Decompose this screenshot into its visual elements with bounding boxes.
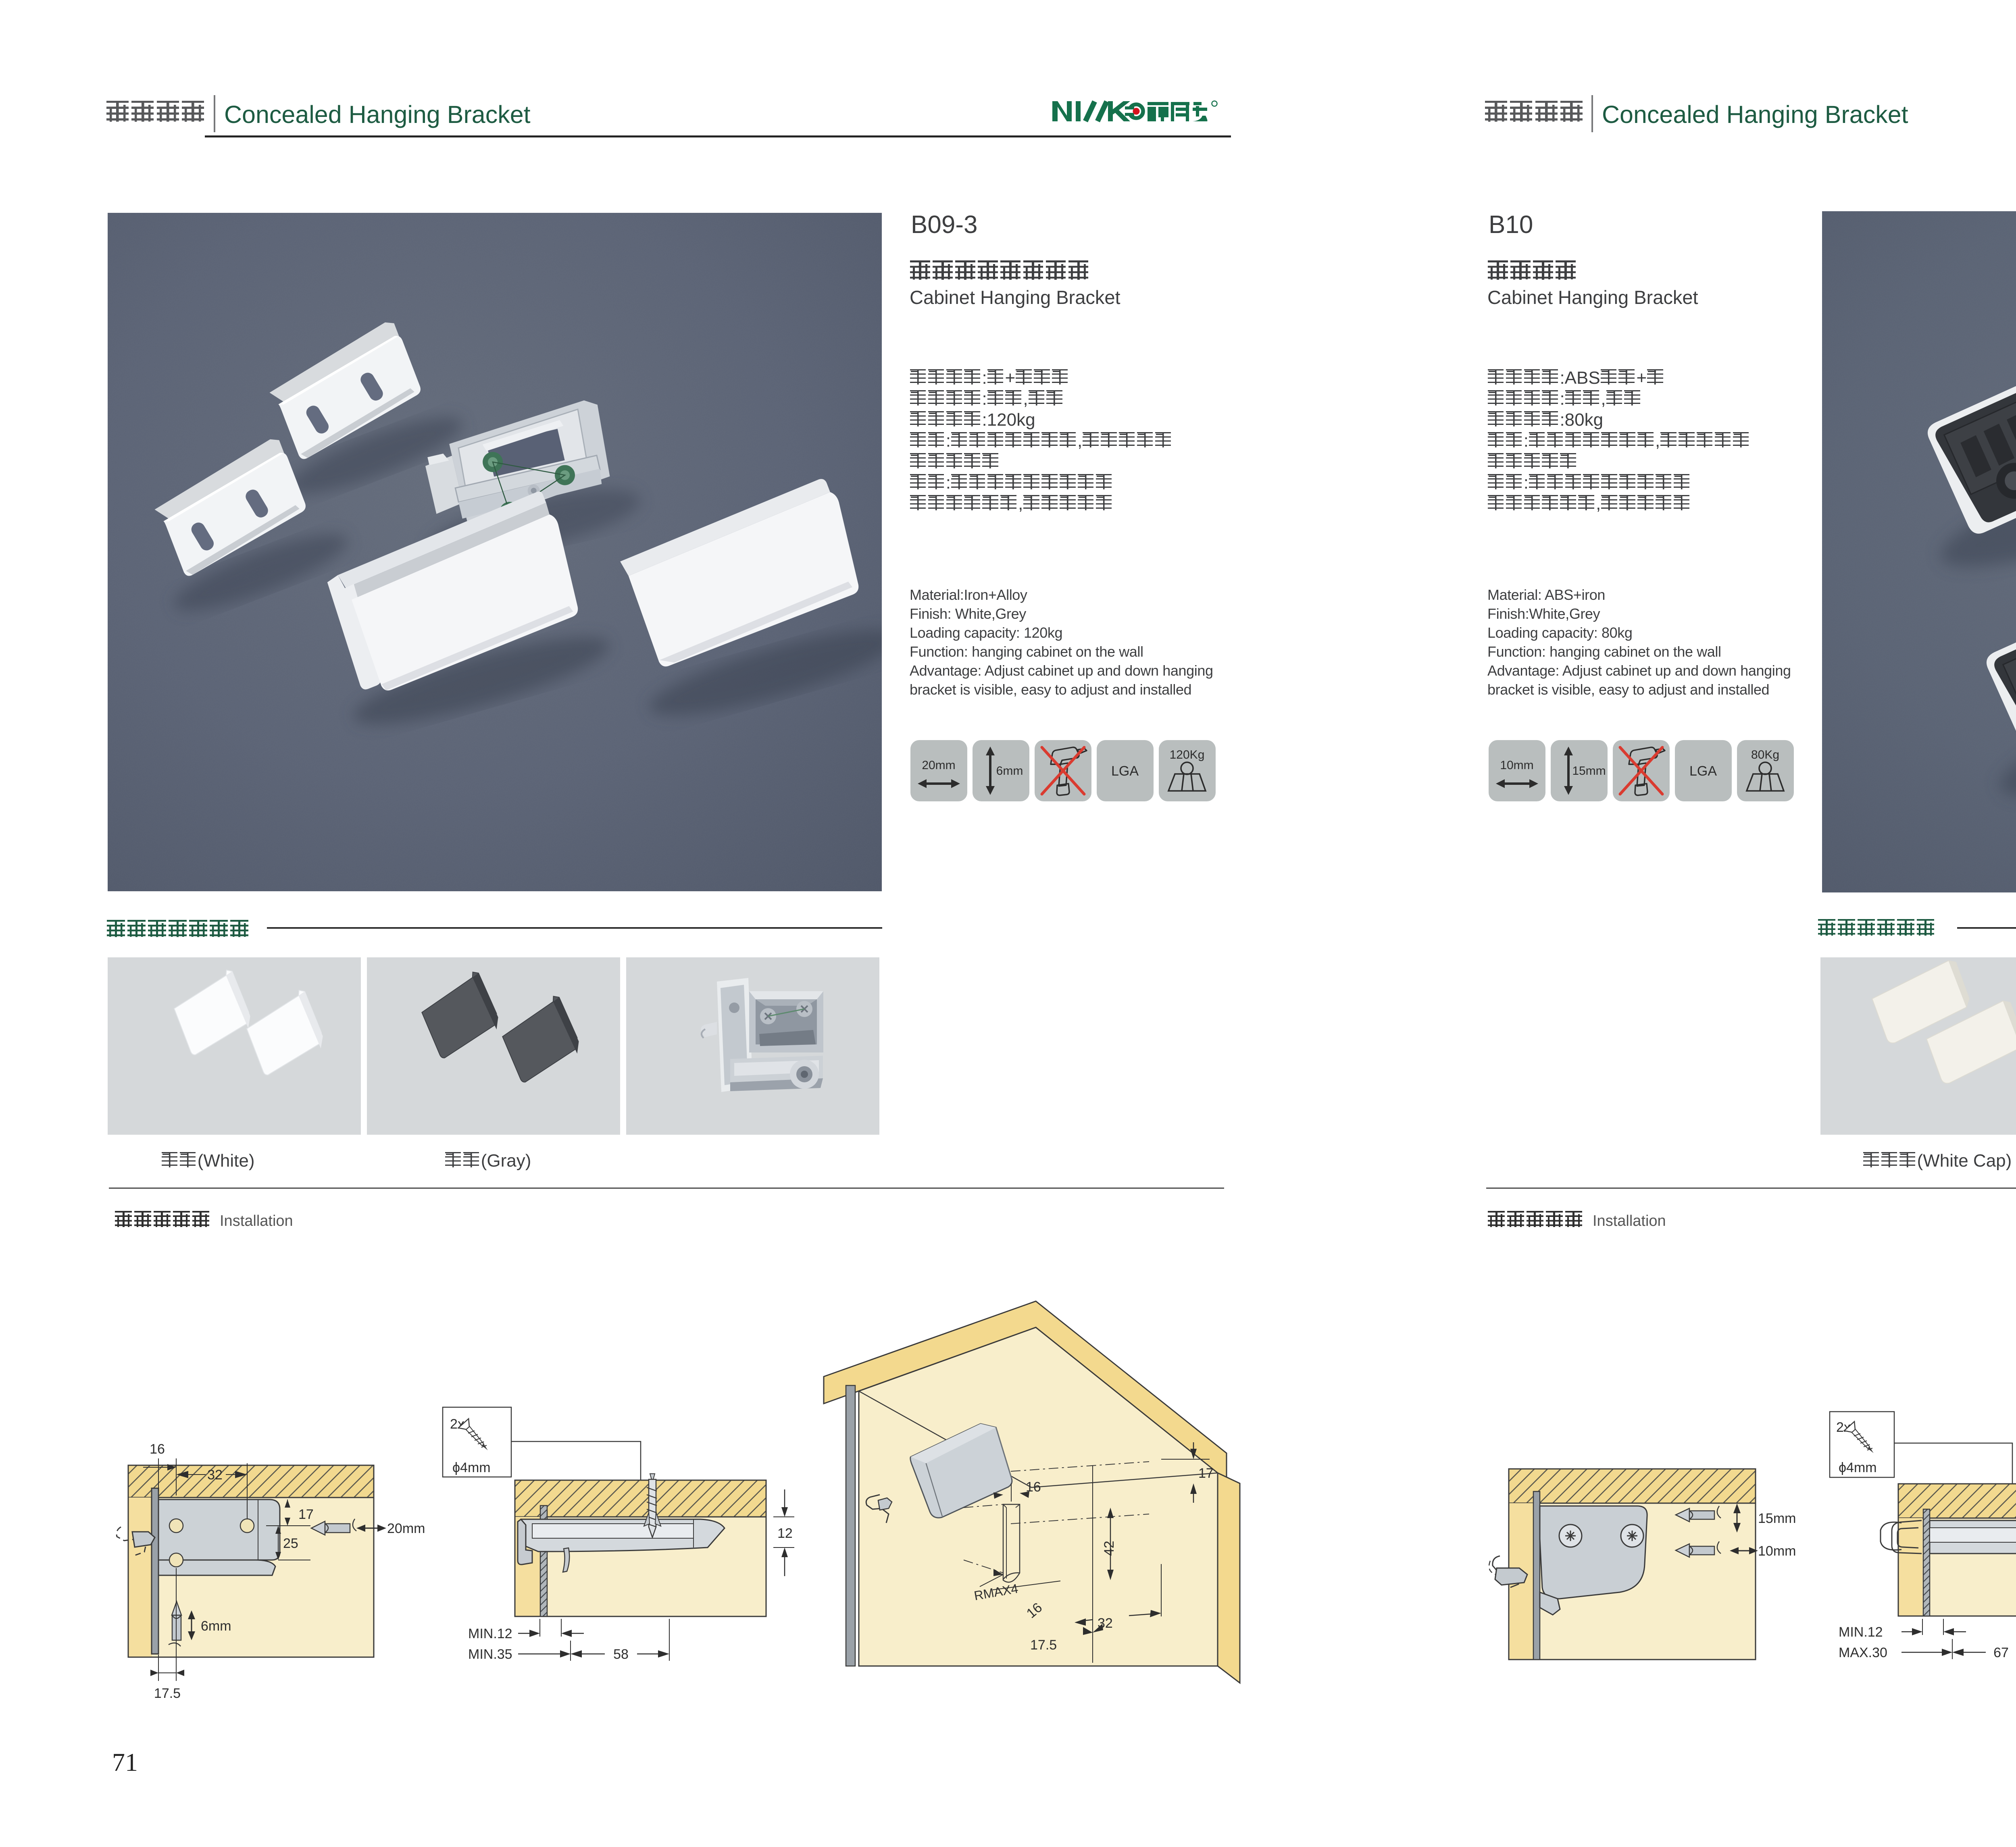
- svg-text:58: 58: [613, 1647, 629, 1662]
- svg-text:6mm: 6mm: [996, 764, 1023, 778]
- svg-text:120Kg: 120Kg: [1170, 748, 1205, 761]
- svg-text:MIN.12: MIN.12: [468, 1626, 512, 1641]
- svg-text:25: 25: [283, 1536, 298, 1551]
- svg-text:16: 16: [1026, 1479, 1041, 1495]
- svg-text:ϕ4mm: ϕ4mm: [452, 1460, 491, 1475]
- svg-text:MAX.30: MAX.30: [1839, 1645, 1887, 1660]
- svg-text:6mm: 6mm: [201, 1618, 231, 1634]
- svg-text:17.5: 17.5: [1030, 1637, 1057, 1653]
- svg-text:20mm: 20mm: [387, 1521, 425, 1536]
- svg-text:17.5: 17.5: [154, 1686, 181, 1701]
- svg-text:17: 17: [1198, 1466, 1214, 1481]
- svg-text:MIN.12: MIN.12: [1839, 1624, 1883, 1640]
- svg-text:20mm: 20mm: [922, 759, 955, 772]
- svg-text:MIN.35: MIN.35: [468, 1647, 512, 1662]
- svg-text:32: 32: [207, 1467, 223, 1483]
- svg-text:12: 12: [777, 1526, 793, 1541]
- svg-text:LGA: LGA: [1689, 763, 1717, 779]
- svg-text:ϕ4mm: ϕ4mm: [1839, 1460, 1877, 1475]
- svg-text:80Kg: 80Kg: [1751, 748, 1779, 761]
- svg-text:15mm: 15mm: [1572, 764, 1606, 778]
- svg-text:67: 67: [1993, 1645, 2009, 1660]
- svg-text:17: 17: [298, 1507, 314, 1522]
- svg-text:16: 16: [150, 1441, 165, 1457]
- svg-text:LGA: LGA: [1111, 763, 1139, 779]
- svg-text:10mm: 10mm: [1758, 1543, 1796, 1559]
- svg-text:15mm: 15mm: [1758, 1511, 1796, 1526]
- svg-text:10mm: 10mm: [1500, 759, 1533, 772]
- svg-text:42: 42: [1102, 1541, 1117, 1556]
